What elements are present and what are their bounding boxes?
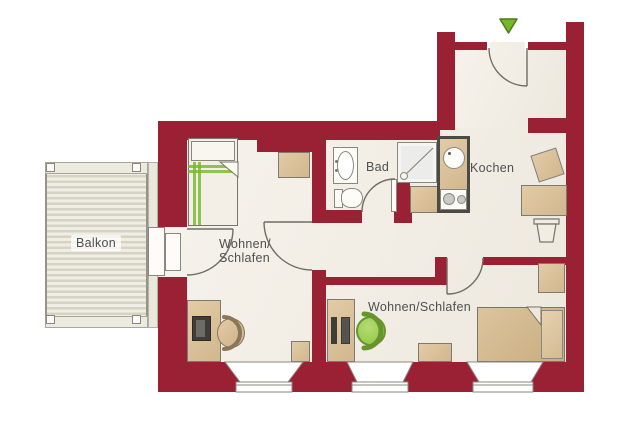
entry-jamb-right bbox=[525, 41, 528, 51]
burner bbox=[443, 193, 455, 205]
wall-vestibule-top-right bbox=[528, 42, 566, 50]
floor-plan: Balkon Wohnen/ Schlafen Bad Kochen Wohne… bbox=[0, 0, 640, 427]
cabinet-left-room bbox=[291, 341, 310, 362]
monitor-screen bbox=[196, 320, 205, 337]
faucet-dot bbox=[335, 169, 338, 172]
balcony-post bbox=[46, 163, 55, 172]
balcony-door-panel bbox=[148, 227, 165, 276]
balcony-post bbox=[46, 315, 55, 324]
desk-pc bbox=[341, 317, 350, 344]
balcony-post bbox=[132, 163, 141, 172]
label-room-left: Wohnen/ Schlafen bbox=[219, 237, 271, 265]
wall-hall-riser bbox=[435, 257, 447, 285]
bed-stripe bbox=[198, 162, 201, 225]
bed-stripe bbox=[193, 162, 196, 225]
bath-cabinet bbox=[410, 186, 438, 213]
label-room-left-line1: Wohnen/ bbox=[219, 237, 271, 251]
wardrobe-left-room bbox=[278, 152, 310, 178]
wall-hall-bottom bbox=[312, 277, 447, 285]
kitchen-sink bbox=[443, 147, 465, 169]
kitchen-sink-drain bbox=[448, 152, 451, 155]
wall-bath-jog bbox=[397, 183, 410, 223]
dining-table bbox=[521, 185, 567, 216]
wall-left-upper bbox=[158, 121, 187, 227]
wall-vestibule-top-left bbox=[447, 42, 487, 50]
bath-sink-basin bbox=[337, 151, 354, 180]
wall-room-left-right-upper bbox=[312, 140, 326, 210]
nightstand-right-room bbox=[538, 263, 565, 293]
label-kitchen: Kochen bbox=[470, 161, 514, 175]
shower bbox=[397, 142, 437, 183]
label-balcony: Balkon bbox=[66, 236, 126, 250]
label-balcony-text: Balkon bbox=[71, 235, 121, 251]
label-room-left-line2: Schlafen bbox=[219, 251, 271, 265]
label-bath: Bad bbox=[366, 160, 389, 174]
label-room-right: Wohnen/Schlafen bbox=[368, 300, 471, 314]
wall-kitchen-stub bbox=[528, 118, 566, 133]
office-chair-green bbox=[356, 316, 386, 346]
wall-bottom bbox=[158, 362, 584, 392]
entrance-arrow-icon bbox=[500, 19, 517, 33]
wall-bath-bottom-left bbox=[312, 210, 362, 223]
wall-right bbox=[566, 22, 584, 392]
wall-top-step bbox=[257, 140, 312, 152]
bath-door-leaf bbox=[391, 179, 397, 212]
vestibule-floor bbox=[447, 42, 566, 128]
entry-jamb-left bbox=[487, 41, 490, 51]
faucet-dot bbox=[335, 160, 338, 163]
balcony-door-panel bbox=[165, 233, 181, 271]
toilet-bowl bbox=[341, 188, 363, 208]
stool bbox=[418, 343, 452, 362]
burner bbox=[457, 195, 466, 204]
desk-speaker bbox=[331, 317, 337, 344]
balcony-post bbox=[132, 315, 141, 324]
desk-chair-left-room bbox=[217, 318, 245, 348]
bed-left-pillow bbox=[191, 141, 235, 161]
bed-right-pillow bbox=[541, 310, 563, 359]
